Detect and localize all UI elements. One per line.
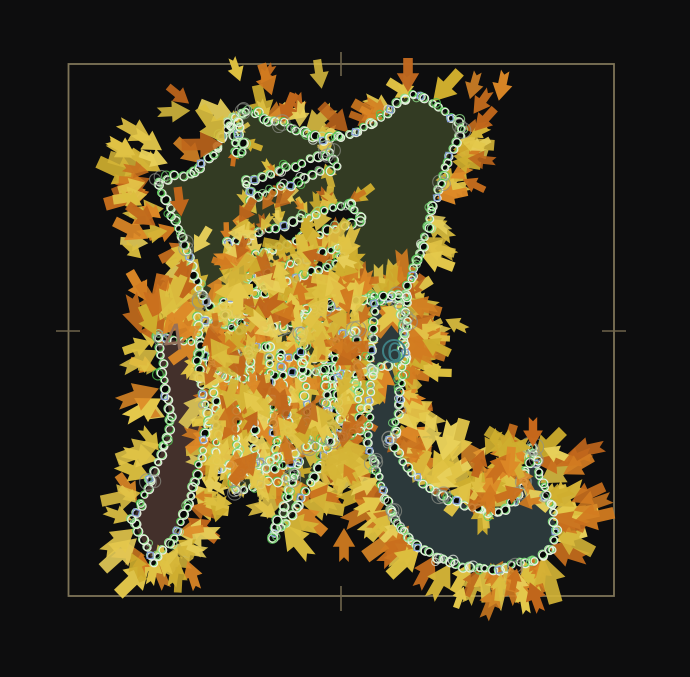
svg-text:6: 6 [387,337,402,367]
